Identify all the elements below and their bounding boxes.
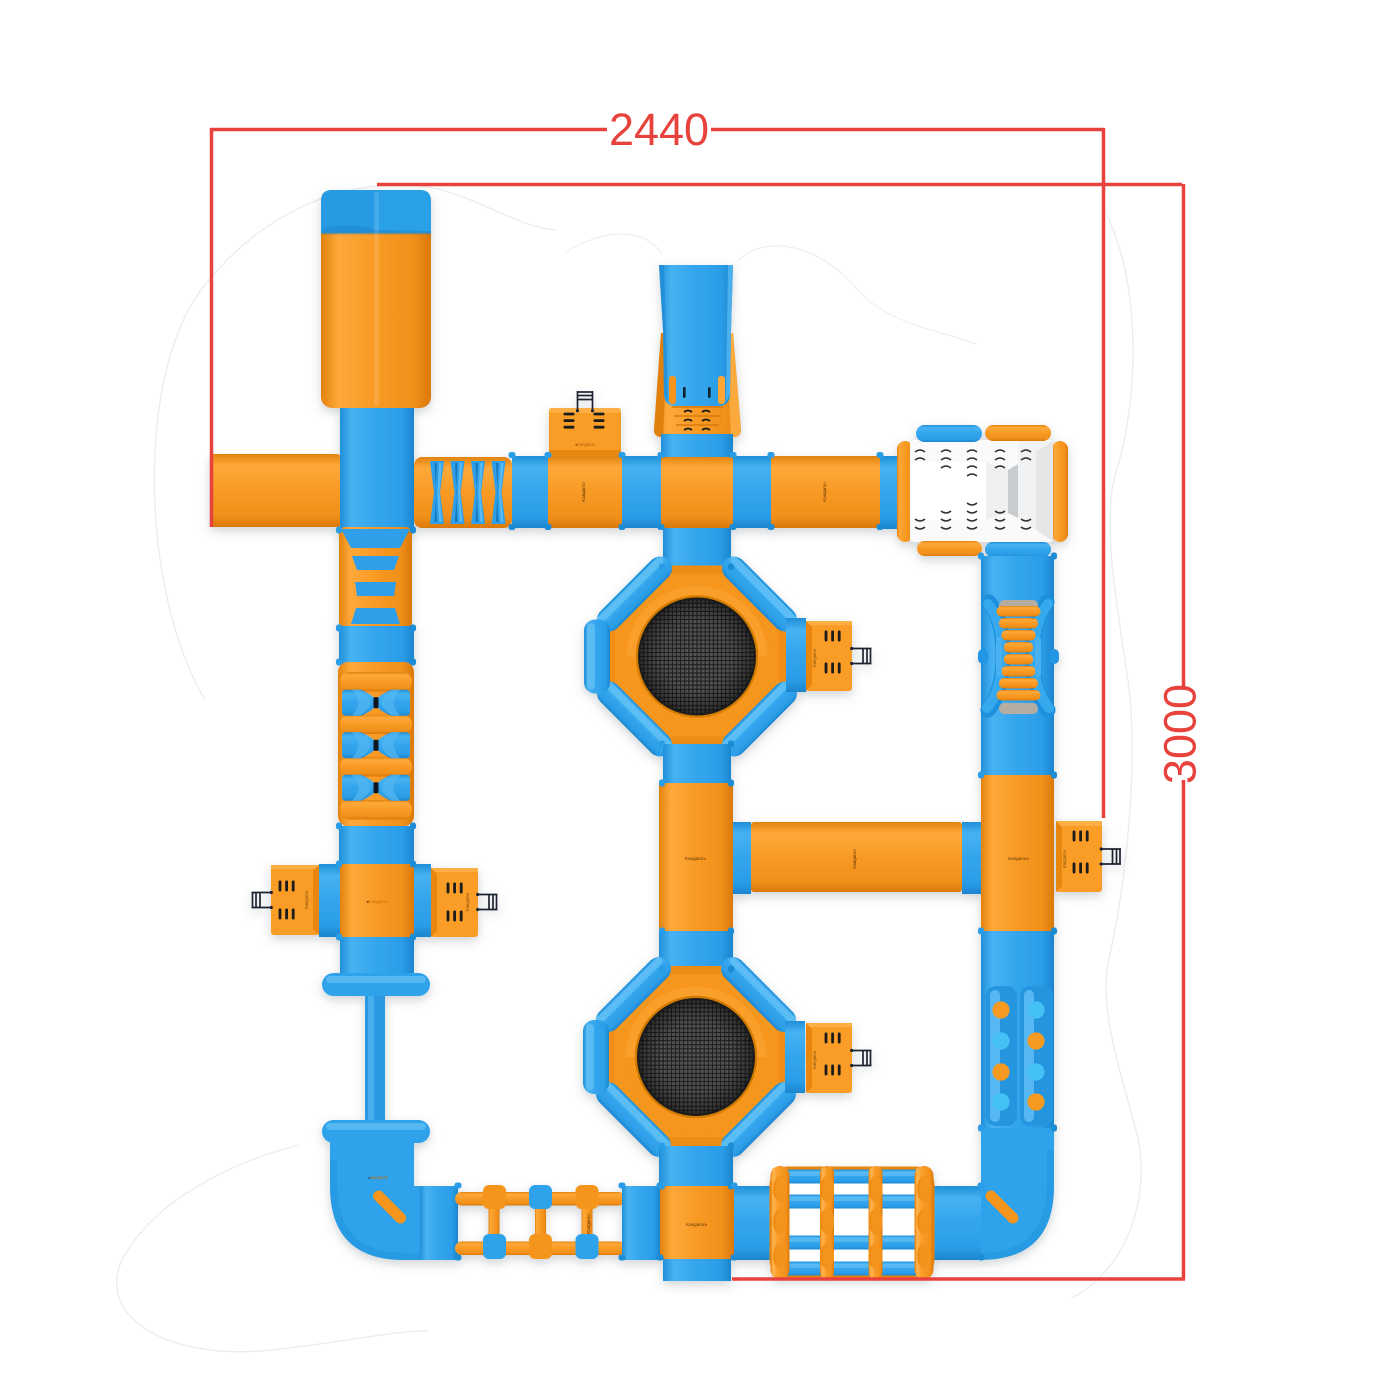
svg-text:Kangaroo▸: Kangaroo▸: [685, 856, 708, 861]
svg-text:Kangaroo: Kangaroo: [304, 890, 309, 909]
svg-text:Kangaroo▸: Kangaroo▸: [686, 1222, 709, 1227]
svg-text:Kangaroo▸: Kangaroo▸: [1008, 856, 1031, 861]
svg-text:Kangaroo: Kangaroo: [852, 849, 857, 869]
svg-text:Kangaroo: Kangaroo: [822, 482, 827, 502]
svg-text:Kangaroo: Kangaroo: [1062, 849, 1067, 868]
svg-text:2440: 2440: [609, 104, 709, 155]
svg-text:◂Kangaroo: ◂Kangaroo: [366, 899, 388, 904]
svg-text:Kangaroo: Kangaroo: [581, 482, 586, 502]
svg-text:Kangaroo: Kangaroo: [812, 648, 817, 667]
svg-text:Kangaroo: Kangaroo: [465, 892, 470, 911]
svg-text:Kangaroo: Kangaroo: [812, 1050, 817, 1069]
svg-text:◂Kangaroo: ◂Kangaroo: [575, 442, 596, 447]
svg-text:3000: 3000: [1154, 684, 1205, 784]
svg-text:◂Kangaroo: ◂Kangaroo: [368, 1175, 389, 1180]
svg-text:Kangaroo: Kangaroo: [586, 1214, 591, 1234]
